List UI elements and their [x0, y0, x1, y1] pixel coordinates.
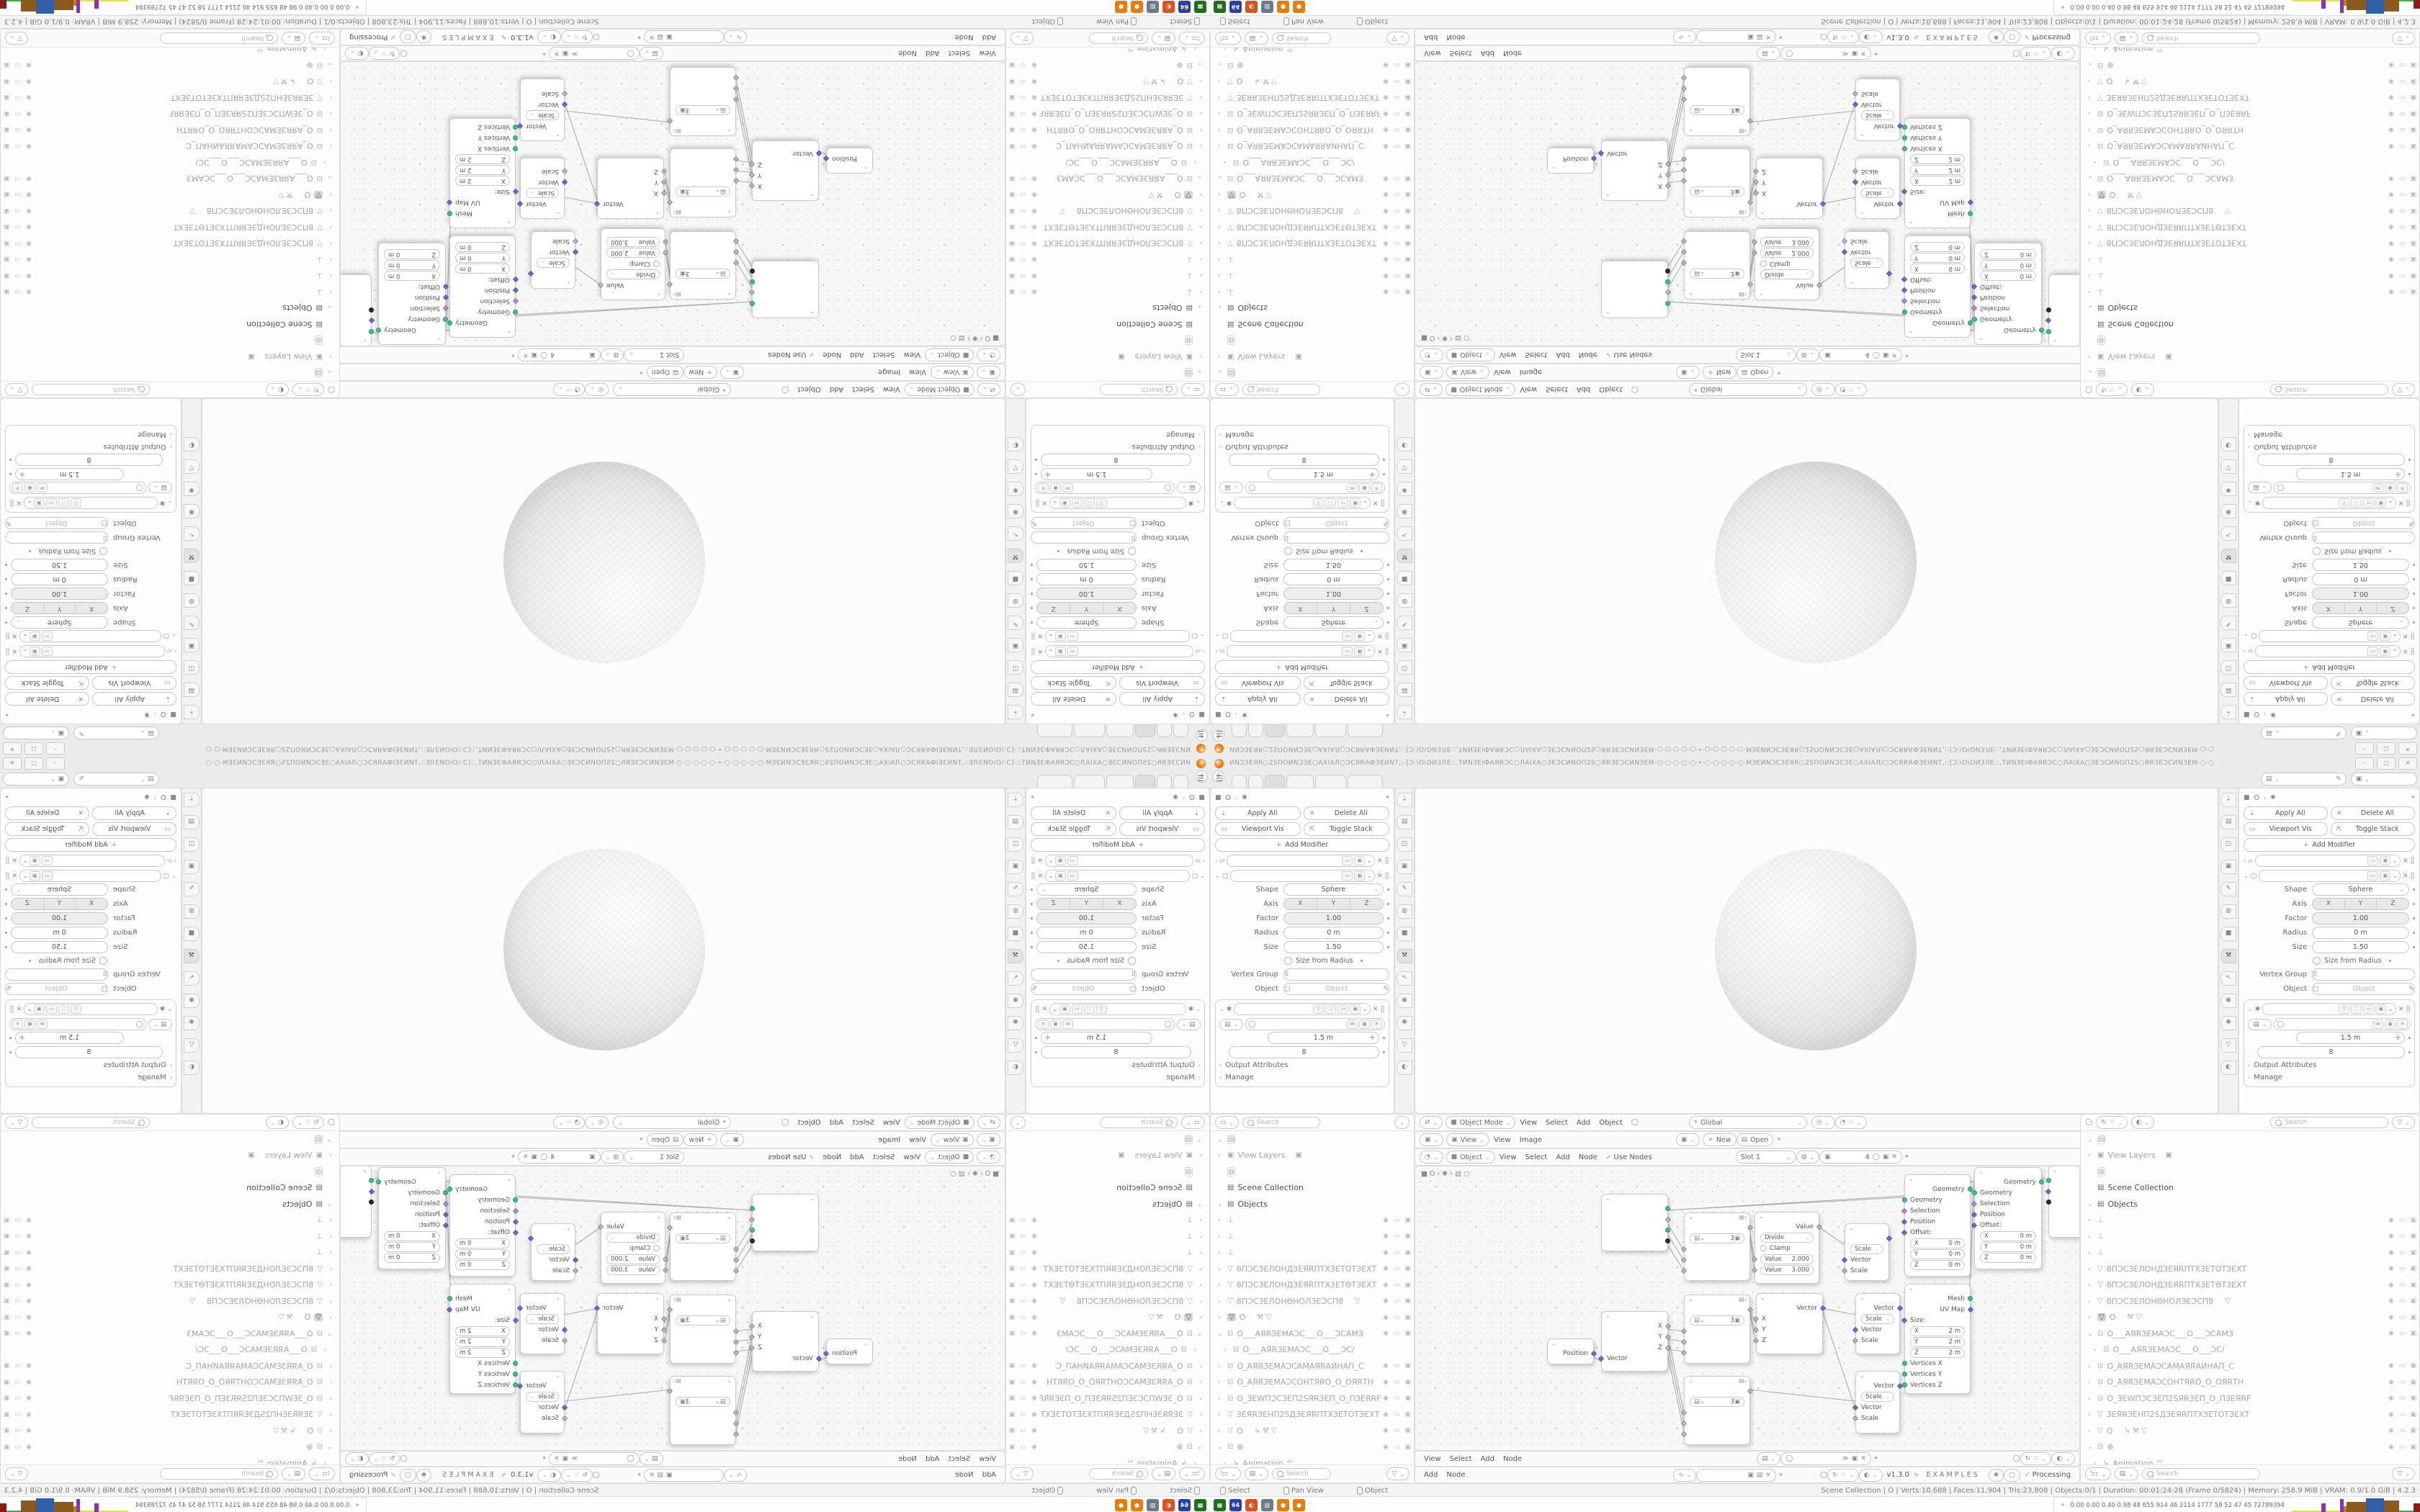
outliner-item[interactable]: ›▽8ПƆСЗЕЛОНДЗЕЯRПТХЗЕТѲТЗЕХТ◉▭▣: [1211, 219, 1414, 235]
hide-icon[interactable]: ◉: [1383, 223, 1389, 230]
disable-render-icon[interactable]: ▣: [4, 240, 10, 247]
menu-select[interactable]: Select: [1450, 50, 1472, 58]
hide-icon[interactable]: ◉: [2388, 61, 2394, 68]
viewport-vis-button[interactable]: ▭Viewport Vis: [1215, 822, 1301, 836]
tool-tab-icon[interactable]: ⇣: [1008, 705, 1023, 719]
outliner-item[interactable]: ›▽ЗЕЯRЗЕНП2SДЗЕЯRПТХЗЕТОТЗЕХТ◉▭▣: [1, 89, 339, 106]
editor-menu-button[interactable]: ▢: [2004, 31, 2020, 44]
viewlayer-tab-icon[interactable]: ▣: [184, 860, 200, 874]
image-users-field[interactable]: ▣4◯▣✕: [1819, 348, 1902, 361]
app-firefox-icon[interactable]: ◐: [1162, 1, 1175, 14]
vertex-group-field[interactable]: ⠿: [1283, 968, 1389, 981]
filter-dropdown[interactable]: ▽⌄: [1010, 32, 1034, 45]
disable-viewport-icon[interactable]: ▭: [15, 126, 22, 133]
node-size-field[interactable]: 1.5 m✛: [1268, 468, 1379, 480]
constraint-tab-icon[interactable]: ↖: [2220, 971, 2236, 986]
menu-view[interactable]: View: [1424, 50, 1441, 58]
node-cube[interactable]: ⌄MeshUV MapSize:X2 mY2 mZ2 mVertices XVe…: [1904, 118, 1971, 228]
close-button[interactable]: ✕: [3, 757, 22, 770]
node-vector-math-3[interactable]: ⌄VectorScale⌄VectorScale: [520, 1371, 565, 1434]
material-datablock[interactable]: ◍⌄: [1796, 348, 1820, 361]
filter-icon-dropdown[interactable]: ▤⌄: [1152, 32, 1175, 45]
disable-render-icon[interactable]: ▣: [1404, 1427, 1411, 1434]
view-layers-row[interactable]: ›▣View Layers▣: [1, 348, 339, 365]
disable-render-icon[interactable]: ▣: [4, 1233, 10, 1240]
outliner-item[interactable]: ›⊟O_ЗЕWПƆСЗЕП2SЯRЗЕП_O_ПЗЕЯRF◉▭▣: [1006, 106, 1209, 122]
disable-viewport-icon[interactable]: ▭: [2399, 110, 2406, 117]
shape-dropdown[interactable]: Sphere: [11, 883, 108, 896]
hide-icon[interactable]: ◉: [2388, 1427, 2394, 1434]
outliner-item[interactable]: ›▽8ПƆСЗЕЛОНДЗЕЯRПТХЗЕТѲТЗЕХТ◉▭▣: [1006, 1277, 1209, 1294]
workspace-tab[interactable]: [1106, 775, 1134, 788]
output-tab-icon[interactable]: ◫: [1397, 837, 1412, 852]
size-field[interactable]: 1.50: [1036, 941, 1137, 953]
slot-dropdown[interactable]: Slot 1⌄: [1736, 348, 1796, 361]
disable-viewport-icon[interactable]: ▭: [1394, 1427, 1400, 1434]
outliner-item[interactable]: ›▽8ПƆСЗЕЛОНДЗЕЯRПТХЗЕТОТЗЕХТ◉▭▣: [1, 235, 339, 252]
app-blender-2-icon[interactable]: ●: [1115, 1, 1127, 14]
pin-icon[interactable]: ⌖: [1386, 711, 1389, 718]
node-vector-math-3[interactable]: ⌄VectorScale⌄VectorScale: [520, 78, 565, 141]
pin-icon[interactable]: ⌖: [637, 34, 641, 41]
menu-view[interactable]: View: [979, 50, 996, 58]
apply-all-button[interactable]: ⇣Apply All: [2244, 692, 2328, 706]
display-mode-dropdown[interactable]: ⚏⌄: [1181, 1116, 1205, 1129]
object-tab-icon[interactable]: ■: [1397, 927, 1412, 941]
search-input[interactable]: Search: [1272, 32, 1331, 44]
apply-all-button[interactable]: ⇣Apply All: [1215, 806, 1301, 820]
disable-viewport-icon[interactable]: ▭: [1394, 1249, 1400, 1256]
world-tab-icon[interactable]: ◍: [184, 904, 200, 919]
menu-select[interactable]: Select: [1525, 351, 1547, 359]
physics-tab-icon[interactable]: ◉: [1397, 504, 1412, 518]
workspace-tab[interactable]: [1286, 724, 1314, 737]
node-math-divide[interactable]: ⌄ValueDivide⌄ClampValue2.000Value3.000: [1754, 228, 1819, 300]
menu-icon[interactable]: ☰: [1216, 774, 1223, 783]
scenes-row[interactable]: ◍: [2081, 333, 2419, 349]
particles-tab-icon[interactable]: ✱: [1008, 482, 1023, 496]
app-blender-1-icon[interactable]: ●: [1131, 1, 1143, 14]
size-from-radius-checkbox[interactable]: Size from Radius: [5, 954, 107, 967]
apply-all-button[interactable]: ⇣Apply All: [2244, 806, 2328, 820]
filter-icon-dropdown[interactable]: ▤⌄: [2115, 32, 2138, 45]
tree-datablock[interactable]: ∿⌄: [724, 31, 747, 44]
outliner-item[interactable]: ⌄⊟O___АЯRЗЕМАƆС___O___ƆСАМЗ◉▭▣: [1, 171, 339, 187]
object-tab-icon[interactable]: ■: [184, 927, 200, 941]
pin-icon[interactable]: ⌖: [2411, 794, 2415, 801]
disable-viewport-icon[interactable]: ▭: [1394, 94, 1400, 101]
disable-viewport-icon[interactable]: ▭: [2399, 94, 2406, 101]
disable-render-icon[interactable]: ▣: [1404, 126, 1411, 133]
outliner-item[interactable]: ›⊟O_АЯRЗЕМАƆСОНТЯRО_O_ОЯRТН◉▭▣: [1006, 1374, 1209, 1391]
outliner-item[interactable]: ›▽8ПƆСЗЕЛОНДЗЕЯRПТХЗЕТОТЗЕХТ◉▭▣: [1211, 1261, 1414, 1277]
editor-type-button[interactable]: ⇄⌄: [1420, 1116, 1443, 1129]
disable-render-icon[interactable]: ▣: [2410, 207, 2416, 215]
editor-type-button[interactable]: ▣⌄: [977, 366, 1000, 379]
outliner-filter-row[interactable]: ⌄▤: [1211, 365, 1414, 382]
hide-icon[interactable]: ◉: [26, 94, 32, 101]
menu-image[interactable]: Image: [878, 1136, 900, 1144]
delete-all-button[interactable]: ✕Delete All: [1031, 806, 1116, 820]
disable-viewport-icon[interactable]: ▭: [1021, 207, 1027, 215]
tree-datablock[interactable]: ∿⌄: [1673, 31, 1696, 44]
outliner-item[interactable]: ›⊥◉▭▣: [1006, 1228, 1209, 1245]
menu-select[interactable]: Select: [1546, 1119, 1568, 1127]
outliner-item[interactable]: ⌄⊟⊕◉▭▣: [1, 57, 339, 73]
outliner-item[interactable]: ›⊥◉▭▣: [1211, 1245, 1414, 1261]
menu-select[interactable]: Select: [948, 50, 970, 58]
node-count-field[interactable]: 8: [1041, 454, 1191, 466]
hide-icon[interactable]: ◉: [26, 1217, 32, 1224]
image-users-field[interactable]: ▣4◯▣✕: [1819, 1151, 1902, 1164]
outliner-item[interactable]: ›▽O↳ ⚒ ▽◉▭▣: [2081, 73, 2419, 90]
pin-icon[interactable]: ⌖: [5, 794, 9, 801]
node-vector-math-1[interactable]: ⌄Scale⌄VectorScale: [531, 1223, 575, 1281]
disable-viewport-icon[interactable]: ▭: [15, 1297, 22, 1305]
modifier-slot[interactable]: ⌄✱ ▽⛶▭▣⌄ ✕⣿: [1219, 497, 1385, 509]
disable-viewport-icon[interactable]: ▭: [1021, 256, 1027, 263]
modifier-tab-icon[interactable]: ⚒: [184, 949, 200, 963]
scenes-row[interactable]: ◍: [1, 333, 339, 349]
object-tab-icon[interactable]: ■: [184, 571, 200, 585]
hide-icon[interactable]: ◉: [1383, 1217, 1389, 1224]
modifier-slot[interactable]: ⌄✱ ▽⛶▭▣⌄ ✕⣿: [9, 1003, 172, 1015]
outliner-item[interactable]: ›▽O⚒ ▽◉▭▣: [1006, 1310, 1209, 1326]
search-input[interactable]: Search: [1089, 1468, 1148, 1480]
snap-toggle[interactable]: ◎⌄: [586, 383, 609, 396]
app-calculator-icon[interactable]: ▥: [1261, 1, 1273, 14]
gizmo-toggle[interactable]: ↻⁙⌄: [561, 1469, 593, 1482]
hide-icon[interactable]: ◉: [1383, 288, 1389, 295]
menu-object[interactable]: Object: [1599, 386, 1623, 394]
slot-dropdown[interactable]: Slot 1⌄: [624, 1151, 684, 1164]
toggle-stack-button[interactable]: ⇱Toggle Stack: [5, 822, 89, 836]
hide-icon[interactable]: ◉: [1383, 126, 1389, 133]
workspace-tab[interactable]: [1232, 724, 1247, 737]
viewport-3d[interactable]: [1415, 398, 2218, 724]
disable-viewport-icon[interactable]: ▭: [2399, 126, 2406, 133]
modifier-slot[interactable]: ⌄✱ ▽⛶▭▣⌄ ✕⣿: [1035, 497, 1201, 509]
object-tab-icon[interactable]: ■: [2220, 571, 2236, 585]
tree-datablock[interactable]: ∿⌄: [724, 1469, 747, 1482]
menu-node[interactable]: Node: [955, 1471, 974, 1479]
hide-icon[interactable]: ◉: [2388, 1330, 2394, 1337]
hide-icon[interactable]: ◉: [1031, 110, 1037, 117]
hide-icon[interactable]: ◉: [1031, 175, 1037, 182]
filter-dropdown[interactable]: ▽⌄: [5, 1116, 28, 1129]
shader-type-dropdown[interactable]: ■Object⌄: [1446, 1151, 1495, 1164]
tree-name-field[interactable]: ▣▤✕: [1696, 1469, 1776, 1482]
modifier-slot[interactable]: ⌄✱ ▽⛶▭▣⌄ ✕⣿: [1219, 1003, 1385, 1015]
outliner-item[interactable]: ›▽8ПƆСЗЕЛОНДЗЕЯRПТХЗЕТѲТЗЕХТ◉▭▣: [2081, 219, 2419, 235]
tree-name-field[interactable]: ◯≫▣✕: [1780, 47, 1871, 60]
workspace-tab[interactable]: [1157, 724, 1172, 737]
outliner-item[interactable]: ›⊥◉▭▣: [1006, 268, 1209, 284]
outliner-item[interactable]: ›⊥◉▭▣: [1211, 1212, 1414, 1229]
disable-viewport-icon[interactable]: ▭: [1021, 126, 1027, 133]
outliner-item[interactable]: ›⊥◉▭▣: [2081, 1228, 2419, 1245]
disable-render-icon[interactable]: ▣: [1404, 94, 1411, 101]
hide-icon[interactable]: ◉: [2388, 256, 2394, 263]
outliner-item[interactable]: ›⊟O_АЯRЗЕМАƆСАМАЯRАИНАП_С◉▭▣: [1006, 1358, 1209, 1374]
outliner-item[interactable]: ›⊟O_АЯRЗЕМАƆСАМАЯRАИНАП_С◉▭▣: [2081, 138, 2419, 155]
filter-icon-dropdown[interactable]: ▤⌄: [1152, 1467, 1175, 1480]
physics-tab-icon[interactable]: ◉: [184, 504, 200, 518]
disable-viewport-icon[interactable]: ▭: [1394, 223, 1400, 230]
world-tab-icon[interactable]: ◍: [1008, 904, 1023, 919]
toggle-stack-button[interactable]: ⇱Toggle Stack: [1304, 822, 1389, 836]
node-tree-selector[interactable]: ▤⌄ ◯≫▣✕: [1035, 482, 1201, 494]
hide-icon[interactable]: ◉: [1031, 288, 1037, 295]
outliner-item[interactable]: ›▽8ПƆСЗЕЛОНѲНОЛЗЕƆСП8▽◉▭▣: [2081, 1293, 2419, 1310]
menu-view[interactable]: View: [909, 1136, 926, 1144]
menu-add[interactable]: Add: [1577, 1119, 1590, 1127]
hide-icon[interactable]: ◉: [26, 207, 32, 215]
overlays-toggle[interactable]: ◐⌄: [1859, 1469, 1883, 1482]
objects-collection-row[interactable]: ⌄▤Objects: [1211, 1196, 1414, 1212]
node-tree-selector[interactable]: ▤⌄ ◯≫▣✕: [9, 482, 172, 494]
disable-viewport-icon[interactable]: ▭: [15, 94, 22, 101]
node-position[interactable]: ⌄Position: [826, 148, 873, 174]
outliner-item[interactable]: ›⊟O___АЯRЗЕМАƆС___O___ƆС/: [1211, 154, 1414, 171]
objects-collection-row[interactable]: ⌄▤Objects: [1, 1196, 339, 1212]
axis-segmented[interactable]: X Y Z: [1036, 898, 1137, 910]
constraint-tab-icon[interactable]: ↖: [184, 971, 200, 986]
menu-select[interactable]: Select: [873, 351, 895, 359]
disable-viewport-icon[interactable]: ▭: [15, 1217, 22, 1224]
menu-node[interactable]: Node: [898, 50, 917, 58]
radius-field[interactable]: 0 m: [1036, 927, 1137, 939]
disable-viewport-icon[interactable]: ▭: [1394, 110, 1400, 117]
outliner-item[interactable]: ›⊟O_ЗЕWПƆСЗЕП2SЯRЗЕП_O_ПЗЕЯRF◉▭▣: [1, 106, 339, 122]
radius-field[interactable]: 0 m: [1283, 573, 1384, 585]
disable-viewport-icon[interactable]: ▭: [1394, 272, 1400, 279]
disable-viewport-icon[interactable]: ▭: [15, 1427, 22, 1434]
modifier-slot[interactable]: ⌄▢ ▭▣⌄ ✕⣿: [1215, 870, 1389, 882]
overlays-toggle[interactable]: ◐⌄: [2131, 383, 2155, 396]
menu-object[interactable]: Object: [1599, 1119, 1623, 1127]
hide-icon[interactable]: ◉: [1383, 191, 1389, 198]
node-node-group-3[interactable]: ⌄▤₃▤⌄3▣: [1684, 1376, 1750, 1445]
menu-add[interactable]: Add: [982, 1471, 996, 1479]
orientation-dropdown[interactable]: ⌖Global⌄: [613, 383, 731, 396]
display-mode-dropdown[interactable]: ⁝⚏⌄: [2085, 1467, 2111, 1480]
search-input[interactable]: Search: [2142, 1468, 2260, 1480]
modifier-slot[interactable]: ›▱ ▭▣⌄ ✕⣿: [1031, 645, 1205, 657]
pin-icon[interactable]: ⌖: [1905, 351, 1909, 359]
disable-viewport-icon[interactable]: ▭: [1021, 1411, 1027, 1418]
disable-viewport-icon[interactable]: ▭: [2399, 1249, 2406, 1256]
particles-tab-icon[interactable]: ✱: [184, 1016, 200, 1030]
hide-icon[interactable]: ◉: [26, 126, 32, 133]
outliner-item[interactable]: ›⊟O_АЯRЗЕМАƆСОНТЯRО_O_ОЯRТН◉▭▣: [1006, 122, 1209, 138]
outliner-item[interactable]: ›⊥◉▭▣: [1, 284, 339, 300]
menu-node[interactable]: Node: [955, 33, 974, 41]
hide-icon[interactable]: ◉: [1383, 175, 1389, 182]
menu-node[interactable]: Node: [1503, 1455, 1522, 1463]
app-package-icon[interactable]: ▦: [1194, 1499, 1206, 1511]
menu-icon[interactable]: ☰: [1197, 729, 1204, 738]
node-vector-math-2[interactable]: ⌄VectorScale⌄VectorScale: [520, 1293, 565, 1354]
editor-type-button[interactable]: ◔⌄: [977, 1151, 1000, 1164]
geometry-node-editor[interactable]: ■ O › ✱ › ▤ ○ ⌄⌄Position⌄XYZVector⌄▤₃▤⌄3…: [340, 1166, 1005, 1451]
factor-field[interactable]: 1.00: [1036, 912, 1137, 924]
outliner-item[interactable]: ⌄⊟⊕◉▭▣: [1211, 57, 1414, 73]
image-view-dropdown[interactable]: ▣View⌄: [931, 366, 974, 379]
app-blender-2-icon[interactable]: ●: [1293, 1499, 1305, 1511]
disable-viewport-icon[interactable]: ▭: [15, 256, 22, 263]
open-image-button[interactable]: ▤Open: [647, 1133, 684, 1146]
node-set-position-1[interactable]: ⌄GeometryGeometrySelectionPositionOffset…: [1904, 1174, 1971, 1277]
disable-viewport-icon[interactable]: ▭: [2399, 1314, 2406, 1321]
node-count-field[interactable]: 8: [1229, 454, 1379, 466]
disable-viewport-icon[interactable]: ▭: [1021, 1395, 1027, 1402]
node-node-group-3[interactable]: ⌄▤₃▤⌄3▣: [1684, 67, 1750, 136]
disable-viewport-icon[interactable]: ▭: [1394, 191, 1400, 198]
menu-select[interactable]: Select: [1525, 1153, 1547, 1161]
image-view-dropdown[interactable]: ▣View⌄: [1446, 1133, 1489, 1146]
menu-node[interactable]: Node: [823, 1153, 841, 1161]
outliner-item[interactable]: ⌄⊟⊕◉▭▣: [1211, 1439, 1414, 1456]
material-datablock[interactable]: ◍⌄: [601, 1151, 624, 1164]
display-mode-dropdown[interactable]: ⁝⚏⌄: [1215, 32, 1241, 45]
output-attributes-collapse[interactable]: ›Output Attributes: [2248, 441, 2411, 453]
image-datablock[interactable]: ▣⌄: [1676, 1133, 1700, 1146]
particles-tab-icon[interactable]: ✱: [184, 482, 200, 496]
node-set-position-2[interactable]: ⌄GeometryGeometrySelectionPositionOffset…: [1974, 243, 2042, 345]
disable-viewport-icon[interactable]: ▭: [2399, 1362, 2406, 1369]
gizmo-toggle[interactable]: ↻⁙⌄: [2096, 1116, 2128, 1129]
node-math-divide[interactable]: ⌄ValueDivide⌄ClampValue2.000Value3.000: [601, 228, 665, 300]
texture-tab-icon[interactable]: ✎: [184, 616, 200, 630]
view-layers-row[interactable]: ›▣View Layers▣: [1006, 1148, 1209, 1164]
outliner-item[interactable]: ›▽ЗЕЯRЗЕНП2SДЗЕЯRПТХЗЕТОТЗЕХТ◉▭▣: [1, 1407, 339, 1423]
image-view-dropdown[interactable]: ▣View⌄: [931, 1133, 974, 1146]
hide-icon[interactable]: ◉: [26, 1282, 32, 1289]
menu-select[interactable]: Select: [948, 1455, 970, 1463]
disable-viewport-icon[interactable]: ▭: [1394, 1362, 1400, 1369]
output-tab-icon[interactable]: ◫: [184, 660, 200, 675]
pin-icon[interactable]: ⌖: [542, 1455, 546, 1462]
minimize-button[interactable]: –: [2355, 742, 2374, 755]
physics-tab-icon[interactable]: ◉: [1008, 994, 1023, 1008]
shader-type-dropdown[interactable]: ■Object⌄: [925, 348, 974, 361]
size-field[interactable]: 1.50: [11, 941, 108, 953]
node-size-field[interactable]: 1.5 m✛: [1041, 468, 1152, 480]
disable-viewport-icon[interactable]: ▭: [2399, 207, 2406, 215]
render-tab-icon[interactable]: ▤: [184, 815, 200, 829]
outliner-item[interactable]: ›▽8ПƆСЗЕЛОНДЗЕЯRПТХЗЕТѲТЗЕХТ◉▭▣: [1211, 1277, 1414, 1294]
app-firefox-icon[interactable]: ◐: [1245, 1, 1258, 14]
size-from-radius-checkbox[interactable]: Size from Radius: [5, 545, 107, 558]
disable-render-icon[interactable]: ▣: [4, 1297, 10, 1305]
output-attributes-collapse[interactable]: ›Output Attributes: [9, 1059, 172, 1071]
hide-icon[interactable]: ◉: [1031, 1362, 1037, 1369]
hide-icon[interactable]: ◉: [26, 1362, 32, 1369]
disable-render-icon[interactable]: ▣: [1404, 1444, 1411, 1451]
editor-type-button[interactable]: ◔⌄: [1420, 348, 1443, 361]
menu-add[interactable]: Add: [1556, 1153, 1569, 1161]
disable-render-icon[interactable]: ▣: [2410, 1362, 2416, 1369]
disable-render-icon[interactable]: ▣: [1009, 207, 1016, 215]
node-size-field[interactable]: 1.5 m✛: [2296, 468, 2405, 480]
radius-field[interactable]: 0 m: [11, 573, 108, 585]
tool-tab-icon[interactable]: ⇣: [1008, 793, 1023, 807]
outliner-item[interactable]: ›▽O↳ ⚒ ▽◉▭▣: [1006, 73, 1209, 90]
viewlayer-tab-icon[interactable]: ▣: [2220, 860, 2236, 874]
disable-viewport-icon[interactable]: ▭: [15, 288, 22, 295]
sphere-object[interactable]: [503, 462, 705, 663]
hide-icon[interactable]: ◉: [2388, 143, 2394, 150]
tree-datablock[interactable]: ▤⌄: [1757, 47, 1780, 60]
disable-viewport-icon[interactable]: ▭: [1021, 1297, 1027, 1305]
outliner-item[interactable]: ›⊥◉▭▣: [1211, 1228, 1414, 1245]
outliner-filter-row[interactable]: ⌄▤: [1006, 365, 1209, 382]
radius-field[interactable]: 0 m: [2312, 573, 2409, 585]
app-floppy64-icon[interactable]: 64: [1178, 1499, 1191, 1511]
pin-icon[interactable]: ⌖: [542, 50, 546, 57]
app-blender-2-icon[interactable]: ●: [1293, 1, 1305, 14]
hide-icon[interactable]: ◉: [2388, 1379, 2394, 1386]
view-layer-selector[interactable]: ▣⌄: [2351, 773, 2417, 786]
object-tab-icon[interactable]: ■: [1397, 571, 1412, 585]
hide-icon[interactable]: ◉: [2388, 223, 2394, 230]
outliner-item[interactable]: ›▽O⚒ ▽◉▭▣: [2081, 1310, 2419, 1326]
outliner-item[interactable]: ›▽ЗЕЯRЗЕНП2SДЗЕЯRПТХЗЕТОТЗЕХТ◉▭▣: [1006, 1407, 1209, 1423]
viewlayer-tab-icon[interactable]: ▣: [1397, 638, 1412, 652]
add-modifier-button[interactable]: +Add Modifier: [1031, 660, 1205, 674]
node-tree-selector[interactable]: ▤⌄ ◯≫▣✕: [1219, 1018, 1385, 1030]
app-package-icon[interactable]: ▦: [1214, 1, 1226, 14]
output-attributes-collapse[interactable]: ›Output Attributes: [1035, 1059, 1201, 1071]
hide-icon[interactable]: ◉: [1383, 1379, 1389, 1386]
manage-collapse[interactable]: ›Manage: [9, 1071, 172, 1084]
menu-add[interactable]: Add: [1424, 1471, 1438, 1479]
outliner-item[interactable]: ›▽ЗЕЯRЗЕНП2SДЗЕЯRПТХЗЕТОТЗЕХТ◉▭▣: [2081, 89, 2419, 106]
disable-render-icon[interactable]: ▣: [1009, 1297, 1016, 1305]
menu-object[interactable]: Object: [797, 386, 821, 394]
orientation-dropdown[interactable]: ⌖Global⌄: [1689, 383, 1807, 396]
workspace-tab[interactable]: [1348, 724, 1383, 737]
gizmo-toggle[interactable]: ↻⁙⌄: [2096, 383, 2128, 396]
hide-icon[interactable]: ◉: [1383, 240, 1389, 247]
shader-type-dropdown[interactable]: ■Object⌄: [925, 1151, 974, 1164]
modifier-slot[interactable]: ⌄▢ ▭▣⌄ ✕⣿: [1031, 630, 1205, 642]
menu-select[interactable]: Select: [873, 1153, 895, 1161]
disable-render-icon[interactable]: ▣: [2410, 1427, 2416, 1434]
search-input[interactable]: Search: [160, 1468, 278, 1480]
outliner-filter-row[interactable]: ⌄▤: [2081, 1131, 2419, 1148]
app-calculator-icon[interactable]: ▥: [1261, 1499, 1273, 1511]
pin-icon[interactable]: ⌖: [1779, 1472, 1783, 1479]
filter-dropdown[interactable]: ⌄: [1394, 383, 1410, 396]
world-tab-icon[interactable]: ◍: [2220, 593, 2236, 608]
hide-icon[interactable]: ◉: [26, 143, 32, 150]
filter-dropdown[interactable]: ▽⌄: [2392, 32, 2415, 45]
disable-render-icon[interactable]: ▣: [1404, 175, 1411, 182]
vertex-group-field[interactable]: ⠿: [2312, 531, 2415, 544]
close-button[interactable]: ✕: [2398, 757, 2417, 770]
hide-icon[interactable]: ◉: [1383, 1249, 1389, 1256]
apply-all-button[interactable]: ⇣Apply All: [1119, 692, 1205, 706]
outliner-item[interactable]: ›⊥◉▭▣: [2081, 251, 2419, 268]
menu-add[interactable]: Add: [850, 351, 864, 359]
restore-button[interactable]: ▢: [2377, 757, 2396, 770]
data-tab-icon[interactable]: ◐: [1397, 437, 1412, 451]
outliner-item[interactable]: ›▽O↳ ⚒ ▽◉▭▣: [1006, 1423, 1209, 1439]
outliner-item[interactable]: ›⊥◉▭▣: [1006, 1245, 1209, 1261]
node-node-group-1[interactable]: ⌄▤₃▤⌄3▣: [670, 231, 736, 300]
